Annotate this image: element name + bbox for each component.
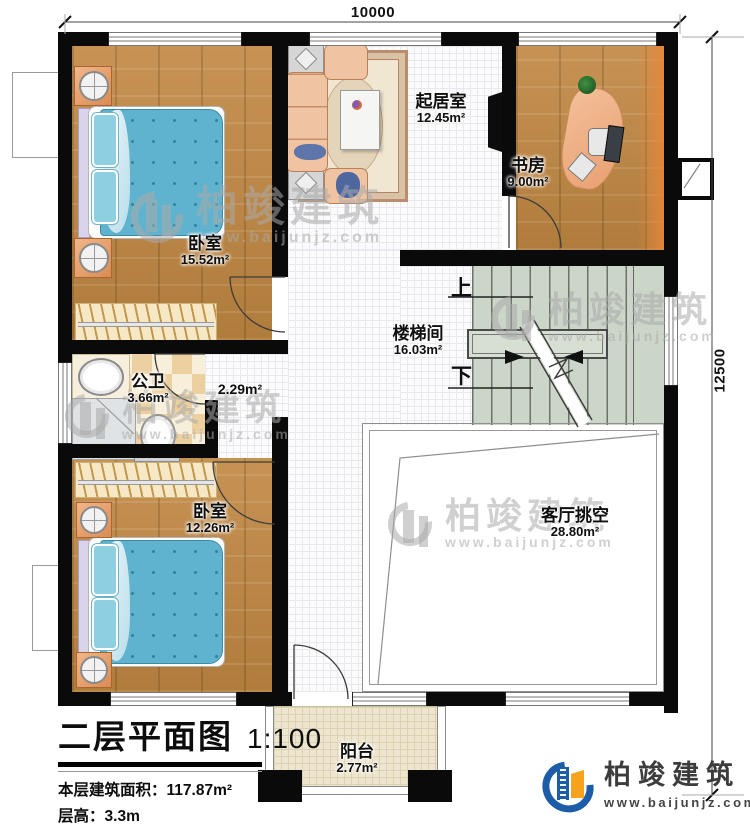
person-figure (336, 172, 360, 198)
room-label-study: 书房 9.00m² (468, 156, 588, 190)
watermark-logo-icon (385, 499, 435, 549)
balcony-threshold (352, 692, 427, 706)
person-figure (294, 144, 326, 160)
lamp-icon (79, 71, 109, 101)
brand-logo: 柏竣建筑 www.baijunjz.com (540, 760, 750, 814)
study-floor-glow (638, 46, 664, 250)
wall-living-bottom (400, 250, 664, 266)
stair-side-area (633, 264, 665, 425)
room-label-bedroom1: 卧室 15.52m² (145, 234, 265, 268)
plant-icon (578, 76, 596, 94)
title-rule-thick (58, 762, 262, 767)
floor-height-value: 3.3m (105, 808, 140, 825)
brand-url: www.baijunjz.com (604, 793, 750, 813)
title-block: 二层平面图1:100 本层建筑面积：117.87m² 层高：3.3m (58, 710, 262, 826)
floor-area-value: 117.87m² (167, 782, 233, 799)
window-bathroom-left (58, 362, 72, 444)
coffee-table (340, 90, 380, 150)
dimension-depth: 12500 (712, 345, 729, 397)
bed1-pillow2 (92, 170, 118, 224)
lamp-icon (79, 243, 109, 273)
room-label-void: 客厅挑空 28.80m² (515, 506, 635, 540)
dim-tick (706, 31, 718, 43)
floor-area-line: 本层建筑面积：117.87m² (58, 778, 262, 804)
wall-bedroom1-right (272, 46, 288, 277)
lamp-icon (80, 506, 108, 534)
room-label-living: 起居室 12.45m² (381, 92, 501, 126)
void-outline-outer (363, 424, 664, 692)
lamp-icon (80, 656, 108, 684)
floor-plan: 柏竣建筑 www.baijunjz.com 柏竣建筑 www.baijunjz.… (0, 0, 750, 826)
window-stairwell-right (664, 296, 678, 386)
side-table (288, 42, 324, 76)
void-slant-lines (378, 434, 659, 684)
title-rule-thin (58, 771, 262, 772)
plan-scale: 1:100 (247, 723, 322, 754)
dim-tick (674, 16, 686, 28)
wall-bathroom-top (58, 340, 288, 354)
wall-bottom-right (628, 692, 678, 706)
room-label-bedroom2: 卧室 12.26m² (150, 502, 270, 536)
brand-logo-building-orange (571, 770, 584, 798)
room-label-stairwell: 楼梯间 16.03m² (358, 324, 478, 358)
brand-logo-icon (540, 760, 596, 814)
wall-bottom-mid (425, 692, 505, 706)
floor-area-label: 本层建筑面积： (58, 782, 167, 799)
window-void-bottom (505, 692, 630, 706)
wall-bedroom2-top-a (58, 444, 213, 458)
void-outline-inner (370, 431, 657, 685)
brand-logo-building-blue (557, 767, 569, 800)
flue-box (678, 158, 714, 200)
window-bedroom1-top (108, 32, 242, 46)
exterior-ledge-top (12, 72, 60, 158)
window-study-top (518, 32, 657, 46)
brand-name: 柏竣建筑 (604, 762, 750, 789)
floor-height-line: 层高：3.3m (58, 804, 262, 826)
balcony-pier-left (258, 770, 302, 802)
bed2-pillow (92, 544, 118, 596)
window-bedroom2-bottom (110, 692, 237, 706)
plan-title: 二层平面图 (58, 718, 233, 755)
bedroom2-wardrobe (75, 462, 217, 498)
stair-landing (467, 329, 608, 359)
exterior-ledge-bottom (32, 565, 60, 651)
floor-height-label: 层高： (58, 808, 105, 825)
armchair (324, 44, 368, 80)
room-label-hall: 2.29m² (180, 382, 300, 398)
bedroom1-wardrobe (75, 303, 217, 341)
dimension-width: 10000 (330, 4, 416, 21)
wall-bedroom2-right (272, 417, 288, 692)
window-living-top (309, 32, 442, 46)
dim-tick (59, 16, 71, 28)
bed1-pillow (92, 113, 118, 167)
stairs-down-label: 下 (451, 360, 472, 390)
stairs-up-label: 上 (451, 272, 472, 302)
plan-title-row: 二层平面图1:100 (58, 710, 262, 758)
corridor-floor (288, 425, 362, 692)
bed2-pillow2 (92, 598, 118, 650)
flower-vase-icon (352, 100, 362, 110)
